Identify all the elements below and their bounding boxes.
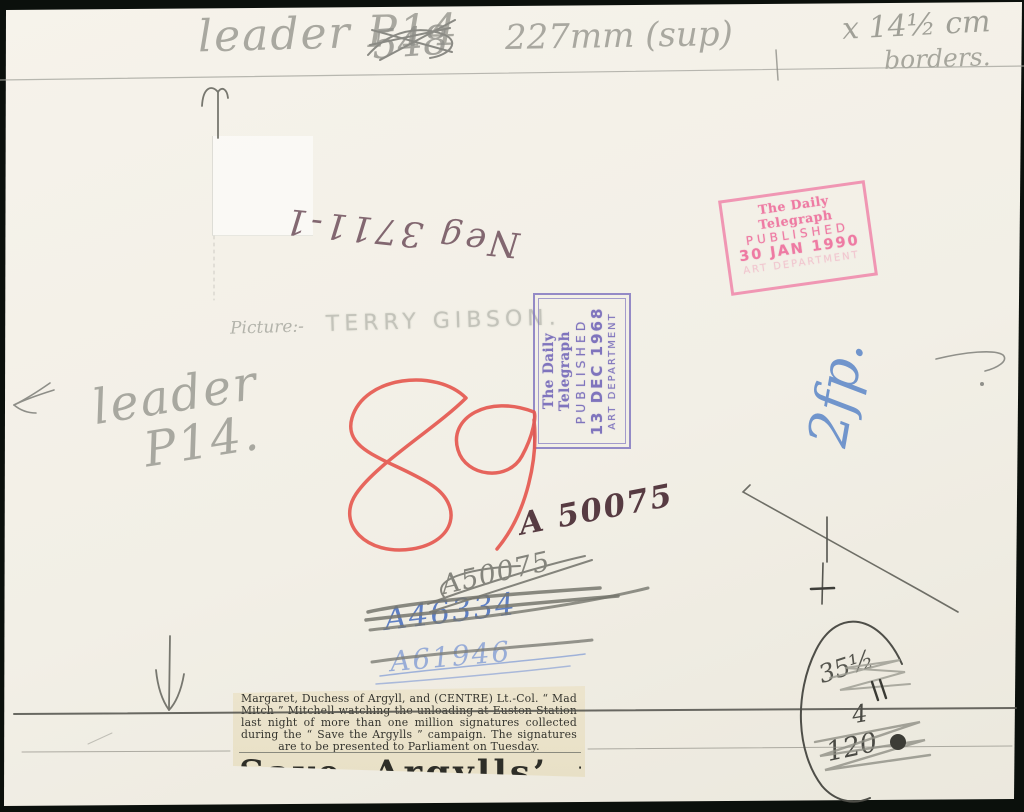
stamp-published-word: PUBLISHED — [573, 295, 588, 447]
stamp-published-1968-box: The Daily Telegraph PUBLISHED 13 DEC 196… — [533, 293, 631, 449]
stamp-department: ART DEPARTMENT — [607, 295, 618, 447]
stamp-published-1968: The Daily Telegraph PUBLISHED 13 DEC 196… — [533, 296, 630, 446]
stamp-paper-name: The Daily Telegraph — [541, 295, 573, 447]
red-crayon-number: 89 — [352, 392, 547, 547]
newspaper-clipping: Margaret, Duchess of Argyll, and (CENTRE… — [233, 686, 585, 782]
top-note-crossed-out: 548 — [370, 17, 449, 68]
photo-back-scan: leader P14 548 227mm (sup) x 14½ cm bord… — [0, 0, 1024, 812]
stamp-date: 13 DEC 1968 — [588, 295, 606, 447]
top-note-measure: 227mm (sup) — [505, 14, 733, 58]
stamp-published-1990: The Daily Telegraph PUBLISHED 30 JAN 199… — [718, 180, 878, 296]
top-note-borders: borders. — [884, 42, 991, 75]
clipping-caption: Margaret, Duchess of Argyll, and (CENTRE… — [241, 693, 577, 753]
credit-label: Picture:- — [230, 317, 304, 339]
